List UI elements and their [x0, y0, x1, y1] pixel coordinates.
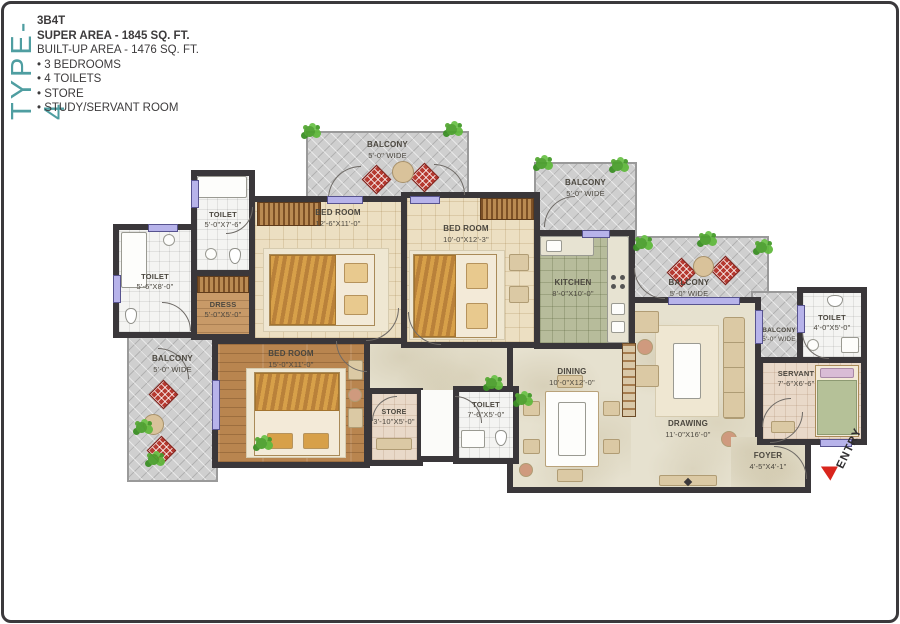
balcony-chair-icon — [149, 380, 179, 410]
feature-bedrooms: • 3 BEDROOMS — [37, 58, 199, 72]
bedroom-1-dims: 12'-6"X11'-0" — [283, 219, 393, 229]
store-shelf-icon — [376, 438, 412, 450]
toilet-2-name: TOILET — [119, 272, 191, 282]
plan-code: 3B4T — [37, 14, 199, 28]
kitchen-counter-icon — [540, 236, 594, 256]
super-area: SUPER AREA - 1845 SQ. FT. — [37, 29, 199, 43]
toilet-2-dims: 5'-6"X8'-0" — [119, 282, 191, 292]
wc-icon — [229, 248, 241, 264]
stove-burner-icon — [620, 284, 625, 289]
pillow-icon — [344, 263, 368, 283]
room-dining: DINING 10'-0"X12'-0" — [507, 343, 637, 493]
dining-table-icon — [545, 391, 599, 467]
balcony-top-name: BALCONY — [308, 140, 467, 151]
feature-store: • STORE — [37, 87, 199, 101]
servant-label: SERVANT 7'-6"X6'-6" — [765, 369, 827, 389]
plant-icon — [700, 234, 711, 245]
pillow-icon — [344, 295, 368, 315]
toilet-lobby — [421, 390, 455, 462]
room-foyer: FOYER 4'-5"X4'-1" — [731, 437, 811, 493]
window — [327, 196, 363, 204]
bedside-seat-icon — [509, 286, 529, 303]
toilet-1-label: TOILET 5'-0"X7'-6" — [191, 210, 255, 230]
washbasin-icon — [163, 234, 175, 246]
drawing-dims: 11'-0"X16'-0" — [633, 430, 743, 440]
balcony-right-name: BALCONY — [649, 278, 729, 289]
dining-chair-icon — [523, 401, 540, 416]
drawing-name: DRAWING — [633, 419, 743, 430]
balcony-left-label: BALCONY 5'-0" WIDE — [129, 354, 216, 375]
toilet-4-name: TOILET — [803, 313, 861, 323]
plant-icon — [612, 160, 623, 171]
plant-icon — [756, 242, 767, 253]
armchair-icon — [633, 365, 659, 387]
bathtub-icon — [197, 176, 247, 198]
window — [113, 275, 121, 303]
bedroom-1-label: BED ROOM 12'-6"X11'-0" — [283, 208, 393, 229]
armchair-icon — [633, 311, 659, 333]
entry-marker: ENTRY — [812, 436, 882, 506]
kitchen-sink-icon — [546, 240, 562, 252]
balcony-top-label: BALCONY 5'-0" WIDE — [308, 140, 467, 161]
servant-dims: 7'-6"X6'-6" — [765, 379, 827, 389]
store-label: STORE 3'-10"X5'-0" — [368, 408, 420, 428]
dining-stool-icon — [519, 463, 533, 477]
dining-label: DINING 10'-0"X12'-0" — [517, 367, 627, 388]
washbasin-counter-icon — [461, 430, 485, 448]
kitchen-name: KITCHEN — [540, 278, 606, 289]
dress-label: DRESS 5'-0"X5'-0" — [197, 300, 249, 320]
bedside-seat-icon — [509, 254, 529, 271]
balcony-chair-icon — [362, 165, 392, 195]
bedroom-1-name: BED ROOM — [283, 208, 393, 219]
console-ornament-icon — [684, 478, 692, 486]
balcony-table-icon — [693, 256, 714, 277]
dress-name: DRESS — [197, 300, 249, 310]
sofa-icon — [723, 317, 745, 419]
feature-study: • STUDY/SERVANT ROOM — [37, 101, 199, 115]
dining-dims: 10'-0"X12'-0" — [517, 378, 627, 388]
plan-info-block: 3B4T SUPER AREA - 1845 SQ. FT. BUILT-UP … — [37, 14, 199, 116]
bedroom-3-dims: 15'-0"X11'-0" — [236, 360, 346, 370]
bed-blanket-icon — [270, 255, 336, 325]
plant-icon — [304, 126, 315, 137]
plant-icon — [256, 438, 267, 449]
toilet-3-name: TOILET — [459, 400, 513, 410]
stove-burner-icon — [611, 284, 616, 289]
room-toilet-4: TOILET 4'-0"X5'-0" — [797, 287, 867, 363]
plant-icon — [148, 454, 159, 465]
dining-table-top-icon — [558, 402, 586, 456]
bedroom-3-label: BED ROOM 15'-0"X11'-0" — [236, 349, 346, 370]
room-balcony-left: BALCONY 5'-0" WIDE — [127, 336, 218, 482]
built-up-area: BUILT-UP AREA - 1476 SQ. FT. — [37, 43, 199, 57]
side-table-icon — [348, 388, 362, 402]
wc-icon — [827, 295, 843, 307]
toilet-3-dims: 7'-6"X5'-0" — [459, 410, 513, 420]
bed-blanket-icon — [255, 373, 339, 411]
toilet-1-dims: 5'-0"X7'-6" — [191, 220, 255, 230]
bedroom-2-dims: 10'-0"X12'-3" — [411, 235, 521, 245]
dining-chair-icon — [557, 469, 583, 482]
balcony-top-right-dims: 5'-0" WIDE — [536, 189, 635, 199]
kitchen-appliance-icon — [611, 321, 625, 333]
stove-burner-icon — [611, 275, 616, 280]
washbasin-icon — [205, 248, 217, 260]
store-dims: 3'-10"X5'-0" — [368, 417, 420, 427]
store-name: STORE — [368, 408, 420, 417]
floor-plan-page: TYPE-4 3B4T SUPER AREA - 1845 SQ. FT. BU… — [0, 0, 900, 624]
balcony-right-label: BALCONY 5'-0" WIDE — [649, 278, 729, 299]
coffee-table-icon — [673, 343, 701, 399]
window — [212, 380, 220, 430]
balcony-left-dims: 5'-0" WIDE — [129, 365, 216, 375]
window — [797, 305, 805, 333]
pouf-icon — [637, 339, 653, 355]
plant-icon — [636, 238, 647, 249]
toilet-3-label: TOILET 7'-6"X5'-0" — [459, 400, 513, 420]
dining-chair-icon — [603, 439, 620, 454]
dress-dims: 5'-0"X5'-0" — [197, 310, 249, 320]
dining-name: DINING — [517, 367, 627, 378]
drawing-label: DRAWING 11'-0"X16'-0" — [633, 419, 743, 440]
window — [410, 196, 440, 204]
wardrobe-icon — [197, 276, 249, 293]
window — [148, 224, 178, 232]
balcony-top-right-name: BALCONY — [536, 178, 635, 189]
console-table-icon — [659, 475, 717, 486]
pillow-icon — [267, 433, 293, 449]
feature-toilets: • 4 TOILETS — [37, 72, 199, 86]
balcony-top-right-label: BALCONY 5'-0" WIDE — [536, 178, 635, 199]
balcony-table-icon — [392, 161, 414, 183]
kitchen-dims: 8'-0"X10'-0" — [540, 289, 606, 299]
window — [191, 180, 199, 208]
pillow-icon — [303, 433, 329, 449]
plant-icon — [136, 422, 147, 433]
kitchen-appliance-icon — [611, 303, 625, 315]
dining-chair-icon — [603, 401, 620, 416]
pillow-icon — [466, 263, 488, 289]
kitchen-label: KITCHEN 8'-0"X10'-0" — [540, 278, 606, 299]
dining-chair-icon — [523, 439, 540, 454]
plant-icon — [446, 124, 457, 135]
foyer-dims: 4'-5"X4'-1" — [731, 462, 805, 472]
room-kitchen: KITCHEN 8'-0"X10'-0" — [534, 230, 635, 349]
wardrobe-icon — [480, 198, 534, 220]
bedroom-3-name: BED ROOM — [236, 349, 346, 360]
bedroom-2-name: BED ROOM — [411, 224, 521, 235]
pillow-icon — [466, 303, 488, 329]
foyer-name: FOYER — [731, 451, 805, 462]
balcony-left-name: BALCONY — [129, 354, 216, 365]
toilet-4-dims: 4'-0"X5'-0" — [803, 323, 861, 333]
stove-burner-icon — [620, 275, 625, 280]
window — [755, 310, 763, 344]
plant-icon — [516, 394, 527, 405]
room-dress: DRESS 5'-0"X5'-0" — [191, 270, 255, 340]
toilet-2-label: TOILET 5'-6"X8'-0" — [119, 272, 191, 292]
bed-icon — [269, 254, 375, 326]
wc-icon — [125, 308, 137, 324]
foyer-label: FOYER 4'-5"X4'-1" — [731, 451, 805, 472]
window — [668, 297, 740, 305]
window — [582, 230, 610, 238]
shower-tray-icon — [841, 337, 859, 353]
bedroom-2-label: BED ROOM 10'-0"X12'-3" — [411, 224, 521, 245]
servant-name: SERVANT — [765, 369, 827, 379]
balcony-top-dims: 5'-0" WIDE — [308, 151, 467, 161]
armchair-icon — [348, 408, 363, 428]
room-toilet-1: TOILET 5'-0"X7'-6" — [191, 170, 255, 276]
kitchen-counter-icon — [607, 236, 629, 343]
toilet-1-name: TOILET — [191, 210, 255, 220]
plant-icon — [536, 158, 547, 169]
toilet-4-label: TOILET 4'-0"X5'-0" — [803, 313, 861, 333]
plant-icon — [486, 378, 497, 389]
wc-icon — [495, 430, 507, 446]
